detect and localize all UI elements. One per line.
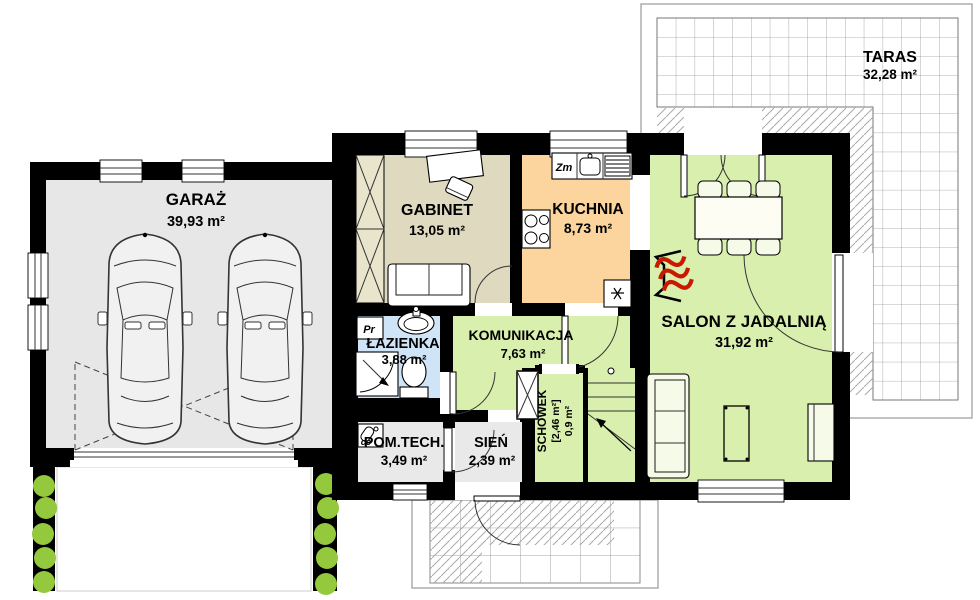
washing-machine-marker: Pr [363,324,375,336]
stove-icon [522,210,550,248]
wardrobe [356,155,384,303]
entrance-porch [412,500,658,588]
car-icon [218,233,312,444]
shrub-icon [316,547,338,569]
storage-area-bracket: [2,46 m²] [550,399,562,442]
fridge-icon [604,280,631,307]
window [28,253,48,298]
garage-area: 39,93 m² [167,214,225,230]
hall-label: KOMUNIKACJA [469,327,574,343]
vestibule-floor [455,422,522,482]
shrub-icon [32,523,54,545]
floor-plan-drawing: GARAŻ 39,93 m² GABINET 13,05 m² KUCHNIA … [0,0,980,600]
shrub-icon [314,523,336,545]
tv-bench [808,404,834,461]
dish-drainer-icon [605,156,630,176]
bathroom-area: 3,88 m² [382,352,427,367]
window [100,160,142,182]
bathroom-label: ŁAZIENKA [366,336,440,352]
living-area: 31,92 m² [715,335,773,351]
wall [510,155,522,316]
hall-area: 7,63 m² [501,346,546,361]
technical-area: 3,49 m² [381,453,428,468]
shrub-icon [315,573,337,595]
wall [30,448,70,467]
garage-label: GARAŻ [166,190,226,209]
wall [583,368,588,482]
driveway [32,467,339,595]
office-sofa [388,264,470,306]
car-icon [98,233,192,444]
living-label: SALON Z JADALNIĄ [661,312,826,331]
kitchen-label: KUCHNIA [552,201,623,218]
living-sofa [647,374,689,478]
window [28,305,48,350]
vestibule-label: SIEŃ [474,434,508,451]
window [182,160,224,182]
window [698,480,784,502]
office-area: 13,05 m² [409,222,465,238]
shrub-icon [35,497,57,519]
office-label: GABINET [401,202,473,219]
terrace-label: TARAS [863,49,917,66]
sink-bowl-icon [580,158,600,175]
staircase-floor [588,368,635,482]
terrace-area: 32,28 m² [863,67,918,82]
vestibule-area: 2,39 m² [469,453,516,468]
technical-label: POM.TECH. [364,435,445,451]
kitchen-area: 8,73 m² [564,220,613,236]
kitchen-living-opening [630,175,650,250]
hall-vestibule-opening [488,410,520,422]
storage-area: 0,9 m² [563,405,575,436]
dining-set [695,181,782,255]
wall [332,398,455,422]
shrub-icon [34,547,56,569]
shrub-icon [33,475,55,497]
window [393,484,427,500]
shrub-icon [33,571,55,593]
storage-label: SCHOWEK [535,389,549,452]
dining-table [695,197,782,239]
boiler-marker: co [361,437,372,447]
shrub-icon [317,497,339,519]
driveway-slab [57,467,311,591]
sink-marker: Zm [555,162,573,174]
floor-plan-page: GARAŻ 39,93 m² GABINET 13,05 m² KUCHNIA … [0,0,980,600]
storage-door-opening [539,364,579,374]
